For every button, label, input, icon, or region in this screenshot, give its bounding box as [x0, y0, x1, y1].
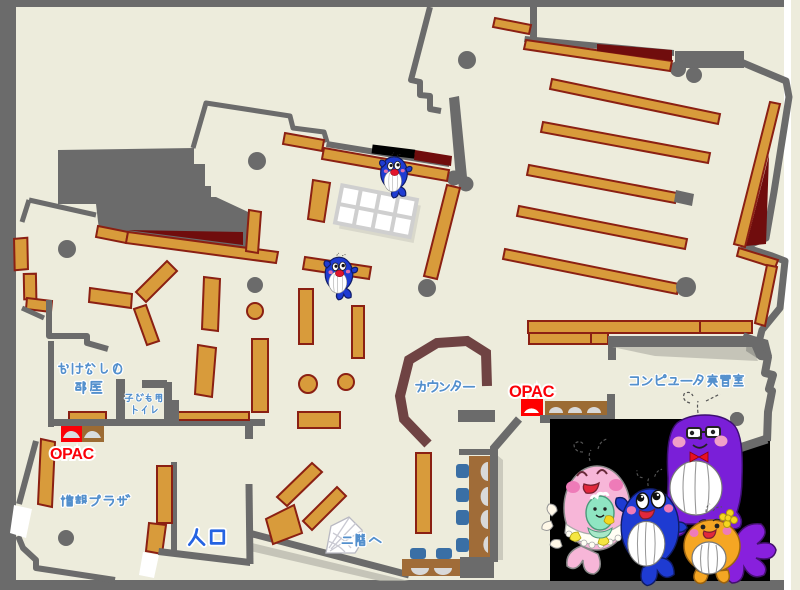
svg-text:OPAC: OPAC — [50, 446, 95, 463]
svg-text:OPAC: OPAC — [509, 383, 555, 401]
